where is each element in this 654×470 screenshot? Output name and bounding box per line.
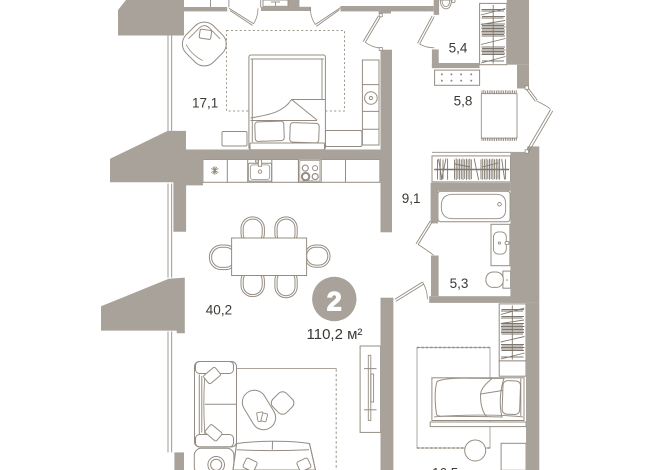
svg-text:16,5: 16,5 xyxy=(432,466,458,470)
svg-text:17,1: 17,1 xyxy=(192,95,218,110)
svg-text:5,4: 5,4 xyxy=(449,41,468,56)
svg-text:110,2 м²: 110,2 м² xyxy=(307,326,363,343)
svg-text:5,8: 5,8 xyxy=(454,93,473,108)
svg-text:9,1: 9,1 xyxy=(402,191,421,206)
svg-text:2: 2 xyxy=(327,287,342,317)
svg-text:5,3: 5,3 xyxy=(450,276,469,291)
svg-text:40,2: 40,2 xyxy=(206,302,232,317)
